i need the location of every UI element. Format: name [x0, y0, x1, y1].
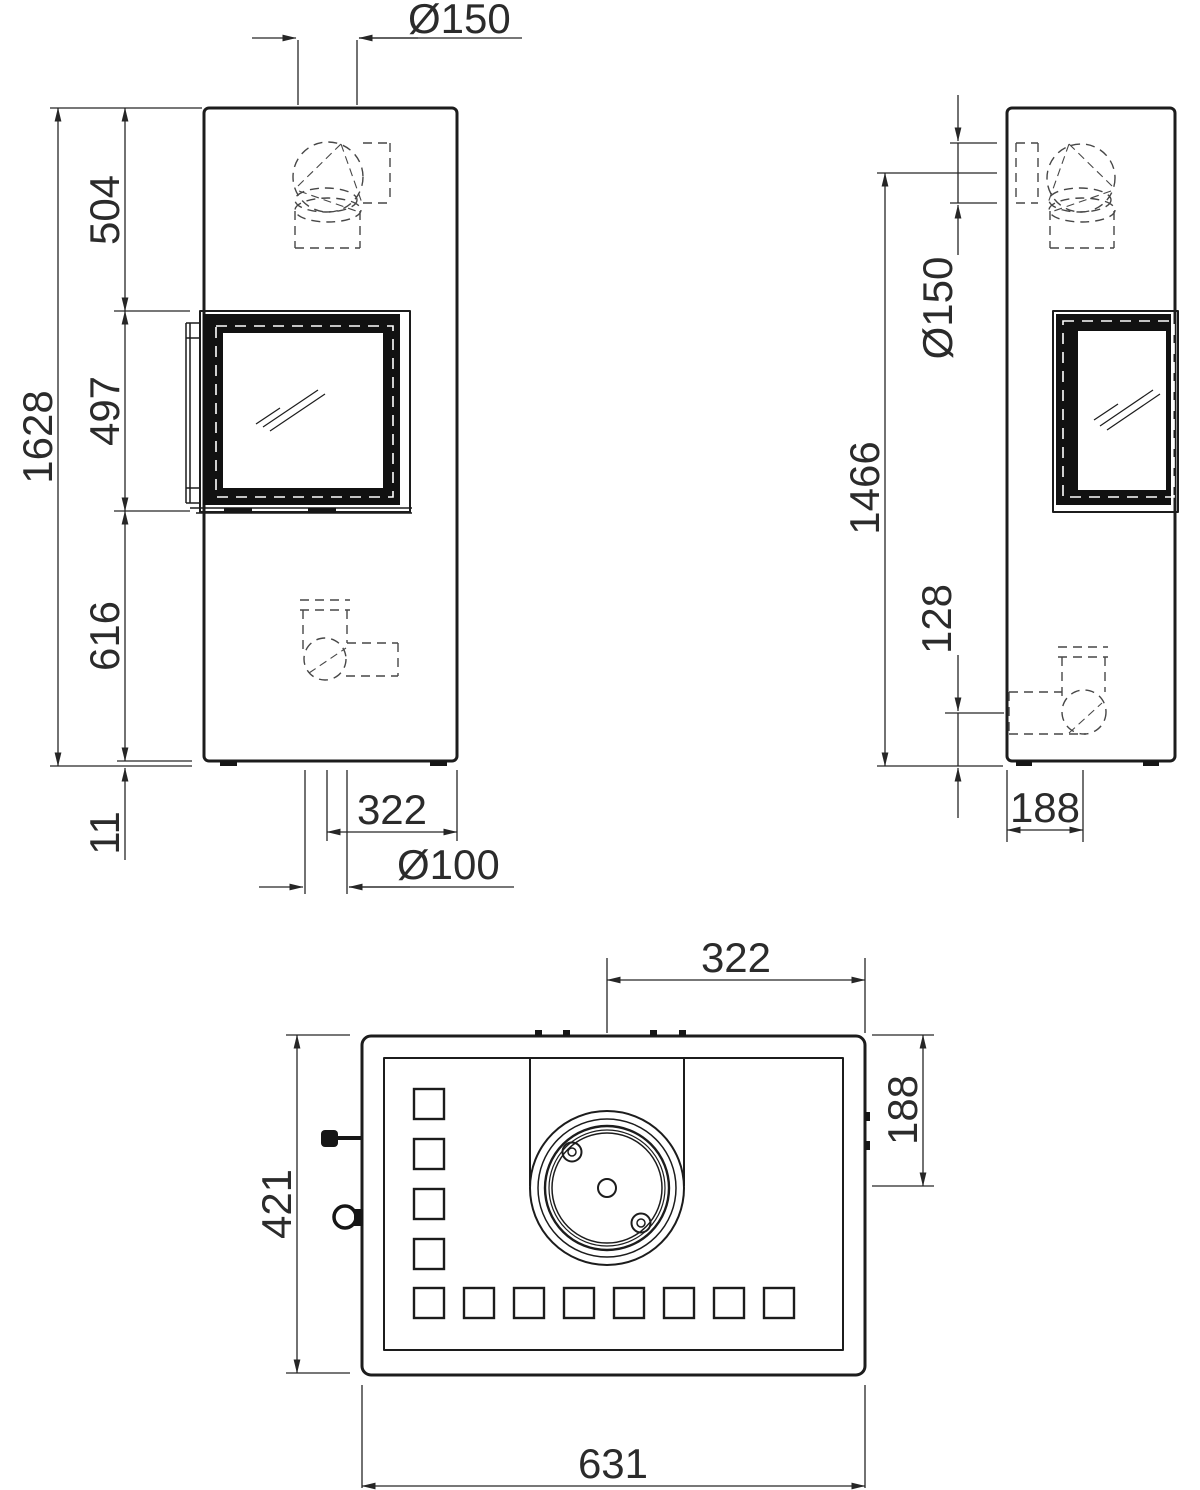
- side-glass-reflection: [1094, 390, 1160, 430]
- dim-top-width: 631: [578, 1440, 648, 1487]
- dim-front-flue-offset: 322: [357, 786, 427, 833]
- dim-front-intake-diameter: Ø100: [397, 841, 500, 888]
- dim-side-rear-to-outlet: 188: [1010, 784, 1080, 831]
- front-view: Ø150 1628 504 497 616 11 322: [14, 0, 522, 894]
- door-hinge-strip: [186, 323, 200, 503]
- top-body-outline: [362, 1030, 870, 1375]
- dim-front-overall-height: 1628: [14, 390, 61, 483]
- dim-side-flue-diameter: Ø150: [914, 257, 961, 360]
- front-glass-door: [186, 311, 412, 513]
- flue-lug-lower: [632, 1214, 651, 1233]
- drawing-canvas: Ø150 1628 504 497 616 11 322: [0, 0, 1200, 1490]
- door-hinge-knob: [321, 1130, 338, 1147]
- side-foot-right: [1143, 761, 1159, 766]
- top-view: 322 188 421 631: [253, 934, 934, 1488]
- side-flue-elbow-hidden: [1016, 143, 1115, 248]
- glass-reflection: [256, 390, 325, 431]
- side-body-outline: [877, 108, 1175, 766]
- dim-front-flue-diameter: Ø150: [408, 0, 511, 42]
- top-vent-squares-column: [414, 1089, 444, 1269]
- front-foot-right: [430, 761, 447, 766]
- dim-side-rear-outlet-height: 1466: [841, 441, 888, 534]
- side-dimensions: Ø150 1466 128 188: [841, 95, 1083, 842]
- top-vent-squares-row: [414, 1288, 794, 1318]
- top-flue-collar: [530, 1058, 684, 1265]
- dim-front-window-height: 497: [81, 376, 128, 446]
- side-air-intake-elbow-hidden: [1009, 647, 1108, 734]
- door-handle-ring: [334, 1206, 356, 1228]
- front-flue-elbow-hidden: [293, 142, 390, 248]
- top-door-hardware: [321, 1130, 363, 1228]
- flue-center-hole: [598, 1179, 616, 1197]
- latch-mark-upper: [865, 1112, 870, 1121]
- front-foot-left: [220, 761, 237, 766]
- latch-mark-lower: [865, 1141, 870, 1150]
- dim-front-window-to-base: 616: [81, 601, 128, 671]
- technical-drawing: Ø150 1628 504 497 616 11 322: [0, 0, 1200, 1490]
- side-glass-door: [1053, 311, 1178, 512]
- dim-top-depth: 421: [253, 1169, 300, 1239]
- door-bottom-strip: [190, 508, 412, 513]
- dim-side-intake-outlet-height: 128: [913, 584, 960, 654]
- dim-top-back-to-flue: 188: [879, 1075, 926, 1145]
- side-view: Ø150 1466 128 188: [841, 95, 1178, 842]
- dim-front-plinth-height: 11: [81, 811, 128, 855]
- side-foot-left: [1016, 761, 1032, 766]
- front-air-intake-elbow-hidden: [300, 600, 398, 680]
- dim-top-flue-offset: 322: [701, 934, 771, 981]
- dim-front-top-to-window: 504: [81, 175, 128, 245]
